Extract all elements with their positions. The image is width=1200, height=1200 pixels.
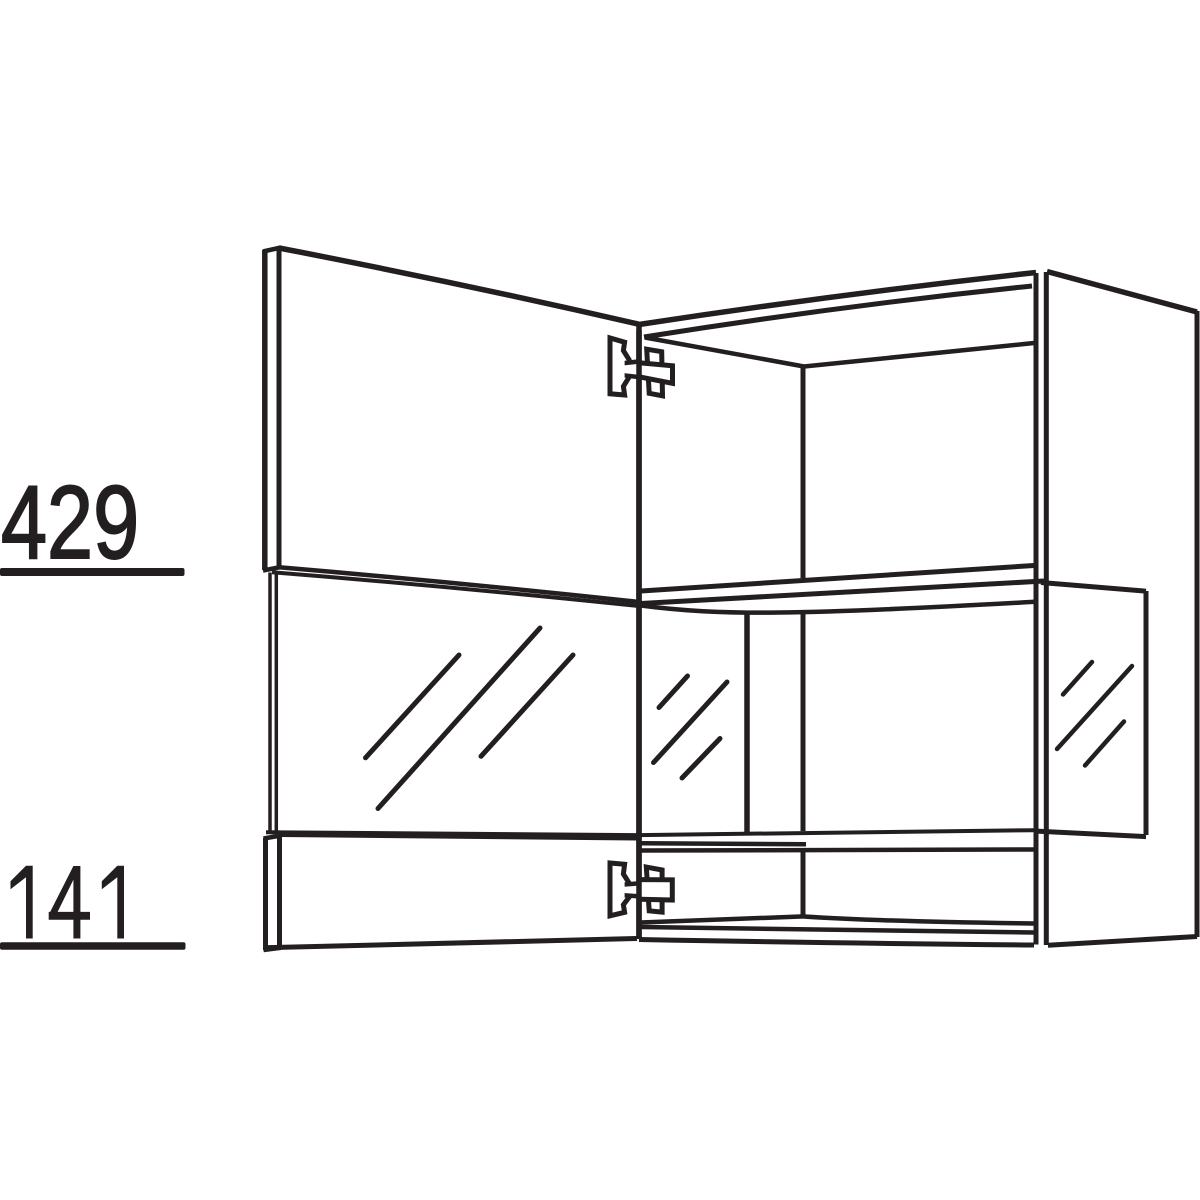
- svg-text:429: 429: [1, 464, 139, 580]
